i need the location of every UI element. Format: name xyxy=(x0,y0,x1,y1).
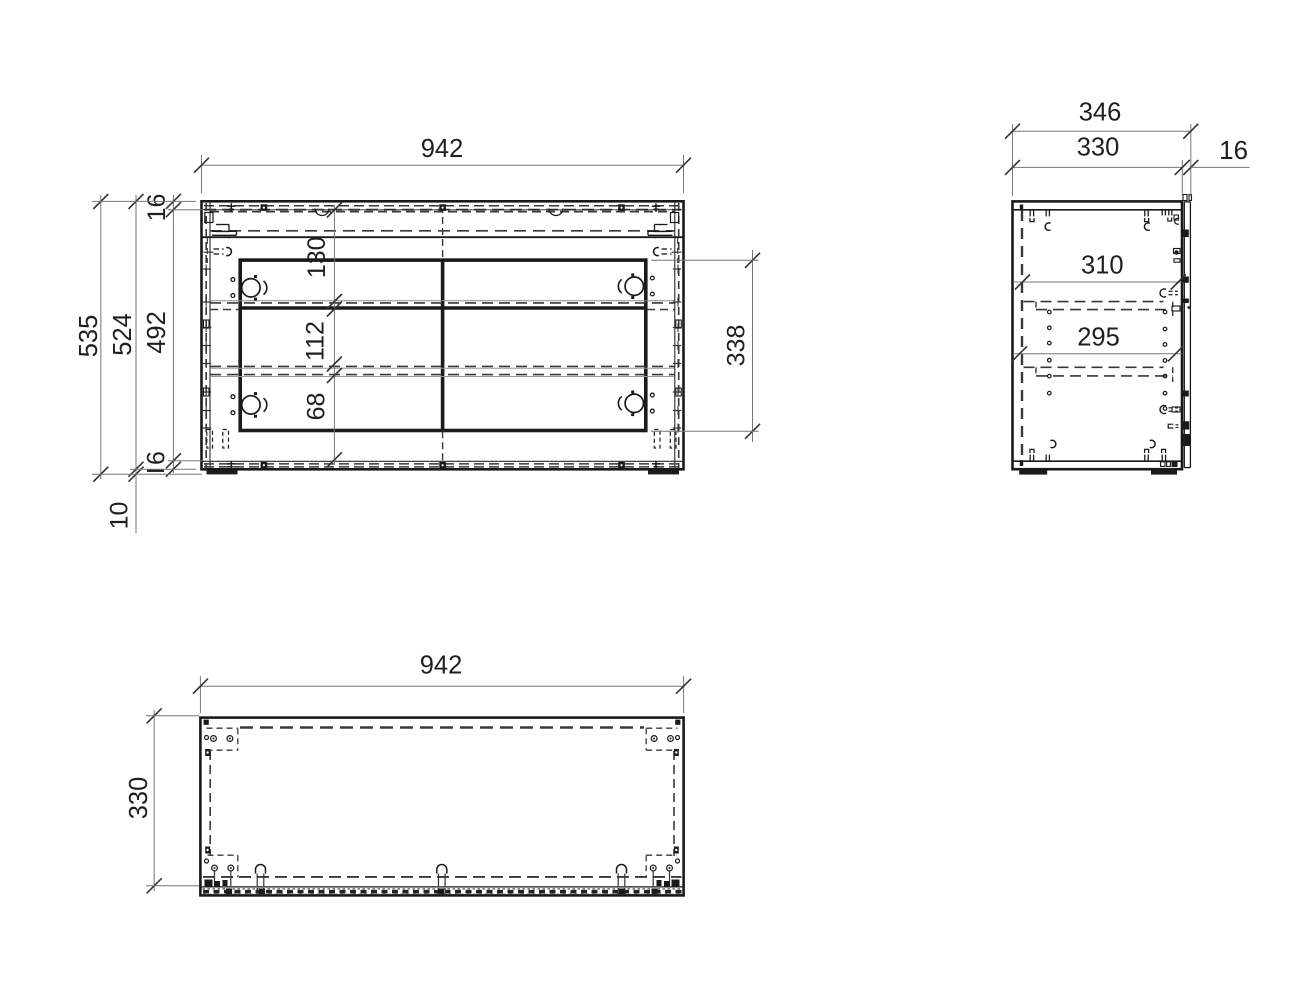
svg-text:942: 942 xyxy=(420,652,463,680)
svg-text:535: 535 xyxy=(75,315,103,358)
svg-text:130: 130 xyxy=(303,236,331,278)
svg-text:16: 16 xyxy=(143,194,171,222)
svg-text:16: 16 xyxy=(1219,135,1248,165)
svg-text:338: 338 xyxy=(723,325,751,367)
svg-text:330: 330 xyxy=(125,777,153,820)
svg-text:295: 295 xyxy=(1077,324,1120,352)
svg-text:68: 68 xyxy=(302,393,330,421)
svg-text:330: 330 xyxy=(1077,134,1120,162)
svg-text:10: 10 xyxy=(105,502,133,530)
svg-text:112: 112 xyxy=(302,321,330,361)
svg-text:524: 524 xyxy=(109,313,137,356)
svg-text:310: 310 xyxy=(1081,251,1124,279)
svg-text:346: 346 xyxy=(1079,99,1122,127)
svg-text:6: 6 xyxy=(143,451,171,465)
svg-text:492: 492 xyxy=(143,311,171,354)
svg-text:942: 942 xyxy=(421,135,464,163)
